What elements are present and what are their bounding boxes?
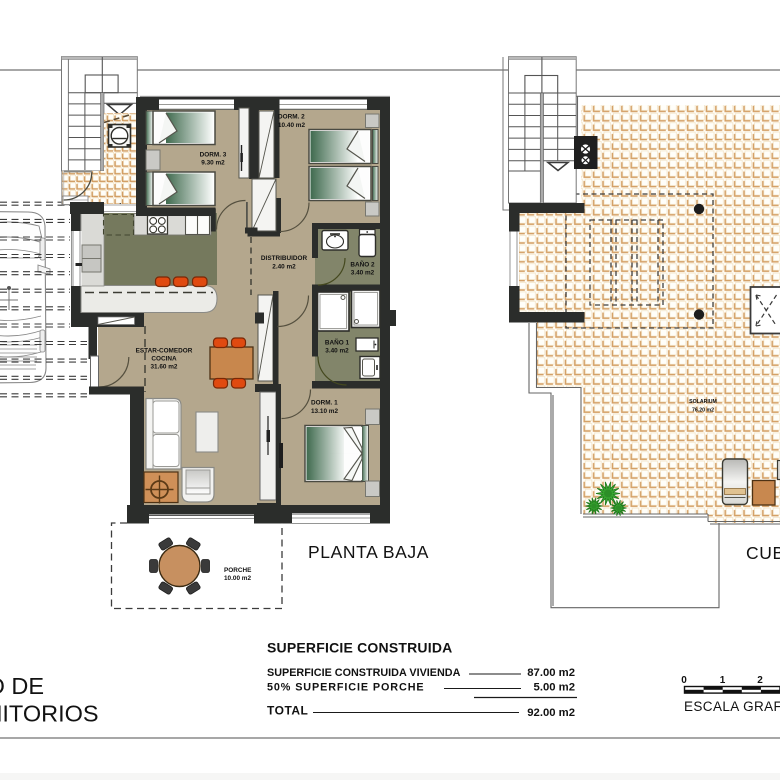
svg-text:10.40 m2: 10.40 m2 — [278, 122, 305, 129]
svg-text:3.40 m2: 3.40 m2 — [325, 348, 349, 355]
svg-text:TOTAL: TOTAL — [267, 704, 308, 718]
svg-text:ESCALA GRAFICA: ESCALA GRAFICA — [684, 699, 780, 714]
svg-text:PORCHE: PORCHE — [224, 567, 252, 574]
svg-text:13.10 m2: 13.10 m2 — [311, 408, 338, 415]
svg-text:COCINA: COCINA — [151, 356, 177, 363]
svg-text:0: 0 — [681, 675, 687, 686]
svg-text:DORM. 3: DORM. 3 — [200, 152, 227, 159]
svg-text:BAÑO 1: BAÑO 1 — [325, 338, 350, 347]
svg-text:5.00 m2: 5.00 m2 — [534, 682, 575, 694]
svg-text:SUPERFICIE CONSTRUIDA VIVIENDA: SUPERFICIE CONSTRUIDA VIVIENDA — [267, 667, 461, 679]
svg-text:31.60 m2: 31.60 m2 — [150, 364, 177, 371]
svg-text:2: 2 — [757, 675, 763, 686]
svg-text:92.00 m2: 92.00 m2 — [527, 707, 575, 719]
svg-text:DORM. 2: DORM. 2 — [278, 114, 305, 121]
svg-text:3.40 m2: 3.40 m2 — [351, 270, 375, 277]
svg-text:76.20 m2: 76.20 m2 — [692, 408, 714, 414]
svg-text:3 DORMITORIOS: 3 DORMITORIOS — [0, 701, 99, 727]
svg-text:87.00 m2: 87.00 m2 — [527, 667, 575, 679]
svg-text:PLANTA BAJA: PLANTA BAJA — [308, 542, 429, 562]
svg-text:DISTRIBUIDOR: DISTRIBUIDOR — [261, 255, 308, 262]
svg-text:SOLARIUM: SOLARIUM — [689, 399, 717, 405]
svg-text:9.30 m2: 9.30 m2 — [201, 160, 225, 167]
svg-text:BAÑO 2: BAÑO 2 — [350, 260, 375, 269]
svg-text:10.00 m2: 10.00 m2 — [224, 575, 251, 582]
svg-text:1: 1 — [720, 675, 726, 686]
svg-text:50% SUPERFICIE PORCHE: 50% SUPERFICIE PORCHE — [267, 682, 425, 694]
svg-text:CUBIERTA: CUBIERTA — [746, 543, 780, 563]
svg-text:MODELO DE: MODELO DE — [0, 673, 44, 699]
svg-text:DORM. 1: DORM. 1 — [311, 400, 338, 407]
svg-text:SUPERFICIE CONSTRUIDA: SUPERFICIE CONSTRUIDA — [267, 640, 452, 656]
svg-text:ESTAR-COMEDOR: ESTAR-COMEDOR — [136, 348, 193, 355]
svg-text:2.40 m2: 2.40 m2 — [272, 264, 296, 271]
